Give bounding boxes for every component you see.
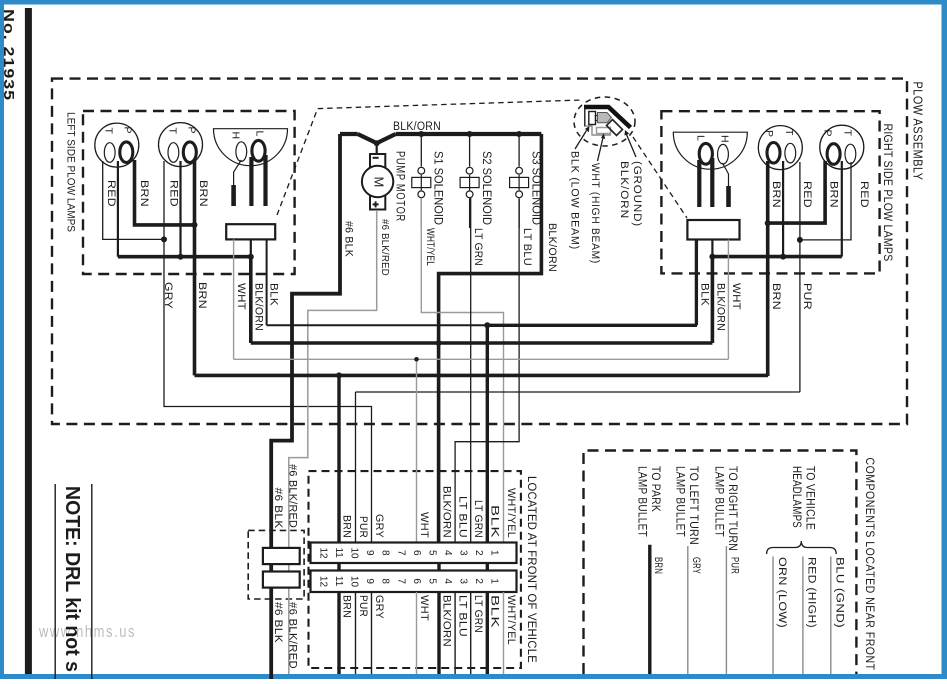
svg-text:BLK/ORN: BLK/ORN (393, 121, 441, 133)
svg-text:2: 2 (473, 550, 484, 556)
svg-text:BRN: BRN (340, 595, 352, 618)
svg-text:LAMP BULLET: LAMP BULLET (712, 466, 724, 537)
svg-text:BLK: BLK (489, 595, 501, 629)
svg-text:BLK/ORN: BLK/ORN (546, 223, 558, 272)
svg-text:PUMP MOTOR: PUMP MOTOR (394, 151, 408, 222)
svg-text:TO PARK: TO PARK (649, 466, 661, 512)
svg-text:11: 11 (333, 547, 344, 558)
svg-text:6: 6 (411, 578, 422, 584)
svg-text:10: 10 (349, 576, 360, 588)
svg-text:WHT: WHT (235, 283, 247, 310)
svg-text:(GROUND): (GROUND) (631, 161, 643, 227)
svg-text:PUR: PUR (357, 516, 369, 538)
svg-text:BLU (GND): BLU (GND) (834, 557, 846, 628)
svg-text:LT GRN: LT GRN (472, 500, 484, 538)
svg-text:HEADLAMPS: HEADLAMPS (790, 466, 802, 528)
svg-text:PUR: PUR (728, 557, 740, 574)
svg-text:L: L (695, 135, 707, 141)
svg-text:WHT: WHT (418, 512, 430, 538)
svg-text:TO RIGHT TURN: TO RIGHT TURN (726, 466, 738, 551)
svg-text:BRN: BRN (770, 181, 782, 208)
svg-text:WHT/YEL: WHT/YEL (505, 488, 517, 538)
svg-text:BLK/ORN: BLK/ORN (440, 486, 452, 538)
svg-text:LAMP BULLET: LAMP BULLET (635, 466, 647, 537)
svg-text:5: 5 (427, 550, 438, 556)
svg-text:BRN: BRN (196, 282, 208, 309)
svg-text:H: H (230, 132, 242, 140)
svg-text:PUR: PUR (801, 283, 813, 310)
svg-text:LAMP BULLET: LAMP BULLET (673, 466, 685, 537)
svg-text:RIGHT SIDE PLOW LAMPS: RIGHT SIDE PLOW LAMPS (881, 124, 893, 262)
svg-text:#6 BLK: #6 BLK (272, 488, 284, 529)
svg-text:PUR: PUR (357, 595, 369, 617)
svg-text:BLK/ORN: BLK/ORN (252, 283, 264, 331)
svg-text:3: 3 (458, 550, 469, 556)
svg-text:BRN: BRN (197, 180, 209, 207)
svg-text:PLOW ASSEMBLY: PLOW ASSEMBLY (911, 82, 925, 181)
svg-text:4: 4 (442, 550, 453, 556)
svg-text:P: P (822, 130, 834, 137)
svg-text:12: 12 (318, 576, 329, 588)
svg-text:S3 SOLENOID: S3 SOLENOID (529, 151, 543, 225)
svg-text:BLK: BLK (267, 283, 279, 306)
svg-text:T: T (842, 130, 854, 137)
svg-text:LOCATED AT FRONT OF VEHICLE: LOCATED AT FRONT OF VEHICLE (525, 476, 539, 663)
svg-text:RED: RED (167, 180, 179, 207)
svg-text:12: 12 (318, 547, 329, 559)
svg-text:No. 21935: No. 21935 (0, 9, 17, 101)
svg-text:#6 BLK/RED: #6 BLK/RED (379, 219, 391, 276)
svg-text:2: 2 (473, 578, 484, 584)
svg-text:8: 8 (380, 578, 391, 584)
svg-text:RED: RED (105, 180, 117, 207)
svg-text:RED: RED (801, 181, 813, 208)
svg-text:WHT (HIGH BEAM): WHT (HIGH BEAM) (589, 163, 601, 264)
svg-text:LT BLU: LT BLU (456, 496, 468, 538)
svg-text:1: 1 (489, 550, 500, 556)
svg-text:10: 10 (349, 547, 360, 559)
svg-text:#6 BLK: #6 BLK (342, 221, 354, 257)
svg-text:3: 3 (458, 578, 469, 584)
svg-text:6: 6 (411, 550, 422, 556)
svg-text:#6 BLK/RED: #6 BLK/RED (287, 464, 299, 528)
svg-text:BLK/ORN: BLK/ORN (618, 161, 630, 219)
svg-text:S1 SOLENOID: S1 SOLENOID (432, 151, 446, 225)
svg-text:H: H (719, 135, 731, 143)
svg-text:8: 8 (380, 550, 391, 556)
svg-text:BRN: BRN (138, 180, 150, 207)
svg-text:COMPONENTS LOCATED NEAR FRONT: COMPONENTS LOCATED NEAR FRONT (863, 458, 877, 671)
svg-text:WHT/YEL: WHT/YEL (505, 595, 517, 645)
svg-text:WHT: WHT (418, 595, 430, 621)
svg-text:GRY: GRY (162, 282, 174, 309)
svg-text:LT GRN: LT GRN (472, 228, 484, 266)
svg-text:11: 11 (333, 576, 344, 587)
svg-text:T: T (166, 128, 178, 135)
svg-text:NOTE: DRL kit not s: NOTE: DRL kit not s (61, 486, 83, 672)
svg-text:TO VEHICLE: TO VEHICLE (803, 466, 815, 530)
svg-text:WHT/YEL: WHT/YEL (424, 228, 436, 266)
svg-text:BLK: BLK (698, 283, 710, 306)
svg-text:P: P (122, 127, 134, 134)
svg-text:BLK: BLK (489, 505, 501, 539)
svg-text:LEFT SIDE PLOW LAMPS: LEFT SIDE PLOW LAMPS (64, 112, 76, 232)
svg-text:GRY: GRY (373, 514, 385, 538)
svg-text:BRN: BRN (827, 181, 839, 208)
svg-text:RED (HIGH): RED (HIGH) (806, 557, 818, 628)
svg-text:9: 9 (364, 578, 375, 584)
svg-text:#6 BLK: #6 BLK (272, 602, 284, 643)
svg-text:BLK (LOW BEAM): BLK (LOW BEAM) (568, 151, 580, 250)
svg-text:9: 9 (364, 550, 375, 556)
svg-text:T: T (783, 129, 795, 136)
svg-text:WHT: WHT (730, 283, 742, 310)
svg-text:P: P (763, 130, 775, 137)
svg-text:LT GRN: LT GRN (472, 595, 484, 633)
svg-text:7: 7 (396, 578, 407, 584)
svg-text:M: M (372, 177, 387, 188)
svg-text:P: P (185, 127, 197, 134)
svg-text:T: T (103, 128, 115, 135)
svg-text:GRY: GRY (373, 595, 385, 619)
svg-text:LT BLU: LT BLU (456, 595, 468, 637)
svg-text:S2 SOLENOID: S2 SOLENOID (480, 151, 494, 225)
svg-text:#6 BLK/RED: #6 BLK/RED (287, 602, 299, 669)
svg-text:GRY: GRY (690, 557, 702, 574)
svg-text:BRN: BRN (770, 283, 782, 310)
svg-text:RED: RED (858, 181, 870, 208)
svg-text:TO LEFT TURN: TO LEFT TURN (687, 466, 699, 545)
svg-text:4: 4 (442, 578, 453, 584)
svg-text:7: 7 (396, 550, 407, 556)
svg-text:BLK/ORN: BLK/ORN (714, 283, 726, 331)
svg-text:L: L (254, 131, 266, 137)
svg-text:ORN (LOW): ORN (LOW) (776, 557, 788, 628)
svg-text:BLK/ORN: BLK/ORN (440, 595, 452, 647)
svg-text:www.nhms.us: www.nhms.us (38, 623, 136, 641)
svg-text:BRN: BRN (652, 557, 664, 574)
svg-text:LT BLU: LT BLU (521, 228, 533, 266)
svg-text:BRN: BRN (340, 515, 352, 538)
svg-text:1: 1 (489, 578, 500, 584)
svg-text:5: 5 (427, 578, 438, 584)
